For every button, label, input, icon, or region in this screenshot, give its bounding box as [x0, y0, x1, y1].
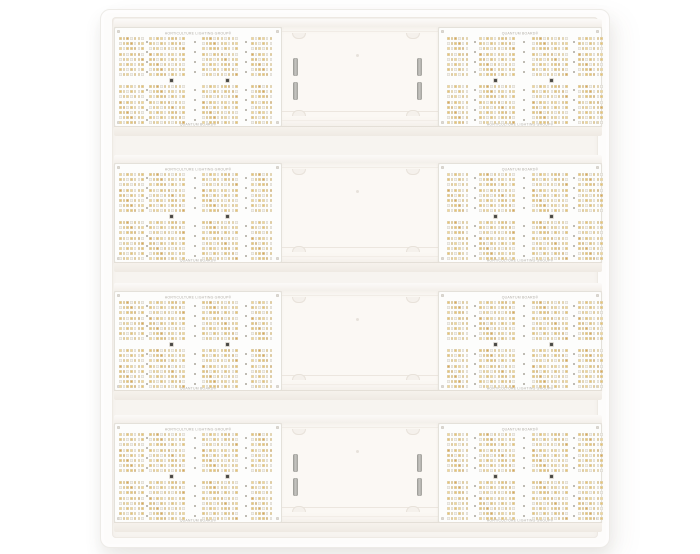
led-diode [454, 385, 457, 388]
led-diode [539, 306, 542, 309]
led-diode [554, 237, 557, 240]
led-diode [255, 116, 258, 119]
led-diode [258, 497, 261, 500]
led-diode [168, 370, 171, 373]
led-diode [578, 497, 581, 500]
led-diode [156, 189, 159, 192]
led-diode [209, 53, 212, 56]
led-diode [551, 37, 554, 40]
led-diode [126, 332, 129, 335]
led-diode [562, 116, 565, 119]
led-diode [565, 380, 568, 383]
led-diode [270, 502, 273, 505]
mounting-hole [441, 426, 444, 429]
led-diode [512, 464, 515, 467]
led-diode [454, 247, 457, 250]
led-diode [554, 252, 557, 255]
led-diode [221, 507, 224, 510]
led-diode [228, 433, 231, 436]
smd-component [573, 363, 575, 365]
led-diode [134, 306, 137, 309]
led-diode [262, 257, 265, 260]
led-diode [593, 189, 596, 192]
led-diode [266, 365, 269, 368]
board-screw [550, 475, 553, 478]
led-diode [202, 221, 205, 224]
led-diode [266, 491, 269, 494]
led-diode [458, 497, 461, 500]
led-diode [262, 433, 265, 436]
led-diode [543, 63, 546, 66]
led-diode [498, 101, 501, 104]
led-diode [494, 209, 497, 212]
led-diode [134, 199, 137, 202]
led-diode [565, 491, 568, 494]
led-diode [251, 221, 254, 224]
led-diode [565, 189, 568, 192]
led-diode [175, 449, 178, 452]
led-diode [451, 68, 454, 71]
led-diode [582, 221, 585, 224]
led-diode [141, 332, 144, 335]
led-diode [202, 469, 205, 472]
led-diode [562, 354, 565, 357]
led-diode [547, 354, 550, 357]
led-diode [175, 247, 178, 250]
led-diode [130, 95, 133, 98]
led-diode [164, 68, 167, 71]
led-diode [213, 68, 216, 71]
led-diode [562, 449, 565, 452]
led-diode [123, 257, 126, 260]
led-diode [486, 354, 489, 357]
led-diode [454, 237, 457, 240]
led-diode [451, 517, 454, 520]
led-diode [168, 42, 171, 45]
led-diode [536, 226, 539, 229]
led-diode [509, 469, 512, 472]
led-diode [582, 481, 585, 484]
led-diode [451, 173, 454, 176]
led-diode [138, 73, 141, 76]
led-diode [565, 317, 568, 320]
led-diode [213, 111, 216, 114]
led-diode [562, 337, 565, 340]
led-diode [454, 106, 457, 109]
channel-notch [292, 33, 306, 39]
led-diode [505, 189, 508, 192]
led-diode [562, 349, 565, 352]
led-diode [551, 443, 554, 446]
led-diode [486, 481, 489, 484]
led-diode [479, 194, 482, 197]
smd-component [474, 315, 476, 317]
led-diode [585, 178, 588, 181]
led-diode [589, 53, 592, 56]
led-diode [138, 63, 141, 66]
led-diode [547, 454, 550, 457]
led-diode [251, 359, 254, 362]
led-diode [119, 47, 122, 50]
led-diode [232, 481, 235, 484]
led-diode [213, 53, 216, 56]
led-diode [498, 512, 501, 515]
led-diode [483, 359, 486, 362]
led-diode [479, 226, 482, 229]
led-diode [451, 183, 454, 186]
led-diode [554, 359, 557, 362]
led-diode [171, 385, 174, 388]
led-diode [536, 375, 539, 378]
led-diode [171, 47, 174, 50]
led-diode [578, 385, 581, 388]
led-diode [182, 178, 185, 181]
led-diode [171, 63, 174, 66]
led-diode [164, 459, 167, 462]
led-diode [547, 242, 550, 245]
smd-component [523, 325, 525, 327]
led-diode [483, 349, 486, 352]
led-diode [134, 517, 137, 520]
led-diode [138, 454, 141, 457]
led-diode [141, 111, 144, 114]
led-diode [251, 106, 254, 109]
smd-component [146, 373, 148, 375]
led-diode [270, 322, 273, 325]
led-diode [558, 502, 561, 505]
led-diode [153, 183, 156, 186]
led-diode [251, 101, 254, 104]
led-diode [119, 90, 122, 93]
led-diode [213, 204, 216, 207]
led-diode [255, 469, 258, 472]
led-diode [221, 464, 224, 467]
led-diode [512, 370, 515, 373]
led-diode [447, 481, 450, 484]
led-diode [582, 47, 585, 50]
led-diode [551, 301, 554, 304]
led-diode [251, 90, 254, 93]
led-diode [149, 247, 152, 250]
led-diode [490, 337, 493, 340]
led-diode [547, 365, 550, 368]
led-diode [153, 121, 156, 124]
led-diode [119, 306, 122, 309]
led-diode [466, 359, 469, 362]
led-diode [266, 252, 269, 255]
led-diode [551, 257, 554, 260]
vent-slot [417, 82, 422, 100]
led-diode [600, 301, 603, 304]
led-diode [458, 257, 461, 260]
led-diode [505, 194, 508, 197]
led-diode [551, 433, 554, 436]
led-diode [486, 231, 489, 234]
led-diode [498, 486, 501, 489]
led-diode [600, 454, 603, 457]
led-diode [217, 85, 220, 88]
led-diode [138, 370, 141, 373]
led-diode [156, 37, 159, 40]
led-diode [512, 443, 515, 446]
led-diode [134, 47, 137, 50]
led-diode [168, 380, 171, 383]
led-diode [270, 221, 273, 224]
led-diode [258, 370, 261, 373]
led-diode [532, 502, 535, 505]
led-diode [123, 209, 126, 212]
led-diode [217, 349, 220, 352]
led-diode [490, 486, 493, 489]
led-diode [217, 486, 220, 489]
smd-component [146, 447, 148, 449]
led-diode [532, 47, 535, 50]
led-diode [582, 502, 585, 505]
led-diode [251, 469, 254, 472]
led-diode [175, 106, 178, 109]
led-diode [551, 322, 554, 325]
led-diode [483, 517, 486, 520]
led-diode [255, 95, 258, 98]
led-diode [270, 68, 273, 71]
led-diode [589, 47, 592, 50]
led-diode [258, 512, 261, 515]
led-diode [565, 486, 568, 489]
led-diode [483, 237, 486, 240]
led-diode [454, 354, 457, 357]
smd-component [146, 515, 148, 517]
led-diode [447, 301, 450, 304]
led-diode [589, 237, 592, 240]
led-diode [458, 178, 461, 181]
led-diode [447, 486, 450, 489]
led-diode [578, 486, 581, 489]
mounting-hole [441, 30, 444, 33]
led-diode [498, 90, 501, 93]
led-diode [138, 106, 141, 109]
led-diode [494, 237, 497, 240]
led-diode [536, 121, 539, 124]
led-diode [209, 85, 212, 88]
led-diode [266, 183, 269, 186]
led-diode [483, 173, 486, 176]
led-diode [153, 242, 156, 245]
led-diode [130, 502, 133, 505]
led-diode [543, 101, 546, 104]
led-diode [134, 380, 137, 383]
led-diode [532, 469, 535, 472]
led-diode [554, 116, 557, 119]
led-diode [221, 53, 224, 56]
led-diode [539, 42, 542, 45]
led-diode [593, 42, 596, 45]
led-diode [589, 337, 592, 340]
led-diode [490, 380, 493, 383]
led-diode [498, 375, 501, 378]
led-cluster [447, 433, 469, 475]
led-diode [554, 90, 557, 93]
led-diode [251, 454, 254, 457]
smd-component [146, 437, 148, 439]
led-diode [232, 209, 235, 212]
led-diode [536, 53, 539, 56]
led-diode [221, 247, 224, 250]
led-diode [454, 491, 457, 494]
led-diode [202, 178, 205, 181]
led-diode [532, 332, 535, 335]
led-diode [270, 42, 273, 45]
led-diode [217, 438, 220, 441]
led-diode [494, 231, 497, 234]
smd-component [194, 197, 196, 199]
led-diode [490, 370, 493, 373]
led-diode [171, 257, 174, 260]
led-diode [228, 106, 231, 109]
led-diode [585, 332, 588, 335]
led-diode [134, 37, 137, 40]
led-diode [123, 481, 126, 484]
led-diode [589, 209, 592, 212]
led-diode [466, 252, 469, 255]
led-diode [156, 311, 159, 314]
led-diode [447, 375, 450, 378]
led-diode [156, 443, 159, 446]
led-diode [582, 359, 585, 362]
led-diode [565, 469, 568, 472]
led-diode [585, 199, 588, 202]
led-diode [202, 257, 205, 260]
mounting-hole [117, 294, 120, 297]
led-diode [562, 380, 565, 383]
led-diode [551, 370, 554, 373]
led-diode [228, 354, 231, 357]
led-diode [235, 438, 238, 441]
led-diode [593, 375, 596, 378]
led-diode [451, 121, 454, 124]
led-diode [255, 178, 258, 181]
led-diode [454, 42, 457, 45]
channel-rivet [356, 190, 359, 193]
led-diode [458, 231, 461, 234]
led-diode [168, 327, 171, 330]
led-diode [232, 385, 235, 388]
led-diode [224, 502, 227, 505]
led-diode [543, 106, 546, 109]
led-diode [156, 47, 159, 50]
led-diode [543, 204, 546, 207]
led-diode [160, 512, 163, 515]
led-diode [206, 42, 209, 45]
led-diode [578, 199, 581, 202]
led-diode [182, 221, 185, 224]
led-diode [235, 247, 238, 250]
led-diode [179, 53, 182, 56]
led-diode [512, 507, 515, 510]
led-diode [582, 42, 585, 45]
led-diode [134, 53, 137, 56]
led-diode [130, 380, 133, 383]
led-diode [123, 317, 126, 320]
led-diode [512, 116, 515, 119]
led-diode [565, 306, 568, 309]
led-diode [175, 491, 178, 494]
smd-component [523, 447, 525, 449]
led-diode [179, 301, 182, 304]
led-diode [458, 375, 461, 378]
led-diode [130, 311, 133, 314]
led-diode [235, 209, 238, 212]
led-diode [554, 459, 557, 462]
led-diode [119, 370, 122, 373]
led-diode [262, 512, 265, 515]
led-diode [505, 85, 508, 88]
led-diode [126, 370, 129, 373]
led-diode [168, 53, 171, 56]
mounting-hole [596, 294, 599, 297]
led-diode [498, 221, 501, 224]
led-diode [255, 301, 258, 304]
led-diode [130, 464, 133, 467]
led-diode [258, 53, 261, 56]
led-diode [126, 354, 129, 357]
led-diode [258, 42, 261, 45]
led-diode [258, 454, 261, 457]
led-diode [505, 178, 508, 181]
led-diode [505, 247, 508, 250]
led-diode [501, 116, 504, 119]
led-diode [228, 90, 231, 93]
led-diode [228, 178, 231, 181]
led-diode [228, 502, 231, 505]
led-diode [175, 257, 178, 260]
led-diode [149, 438, 152, 441]
led-diode [589, 247, 592, 250]
led-diode [582, 469, 585, 472]
led-diode [266, 438, 269, 441]
led-diode [466, 183, 469, 186]
led-diode [451, 311, 454, 314]
board-silkscreen-label-top: HORTICULTURE LIGHTING GROUP® [157, 295, 240, 299]
smd-component [245, 485, 247, 487]
led-diode [123, 502, 126, 505]
led-diode [209, 512, 212, 515]
led-diode [266, 68, 269, 71]
led-diode [213, 95, 216, 98]
led-diode [512, 375, 515, 378]
led-diode [251, 204, 254, 207]
led-diode [156, 497, 159, 500]
led-diode [141, 53, 144, 56]
led-diode [565, 199, 568, 202]
led-diode [543, 116, 546, 119]
led-cluster [578, 85, 604, 127]
led-diode [539, 433, 542, 436]
led-diode [206, 502, 209, 505]
led-diode [179, 58, 182, 61]
led-diode [462, 73, 465, 76]
led-diode [262, 116, 265, 119]
led-diode [451, 507, 454, 510]
led-diode [270, 512, 273, 515]
led-diode [171, 58, 174, 61]
led-diode [130, 491, 133, 494]
led-diode [547, 199, 550, 202]
led-diode [179, 121, 182, 124]
led-diode [209, 327, 212, 330]
led-diode [270, 90, 273, 93]
board-silkscreen-label-top: QUANTUM BOARD® [480, 167, 561, 171]
led-diode [509, 237, 512, 240]
